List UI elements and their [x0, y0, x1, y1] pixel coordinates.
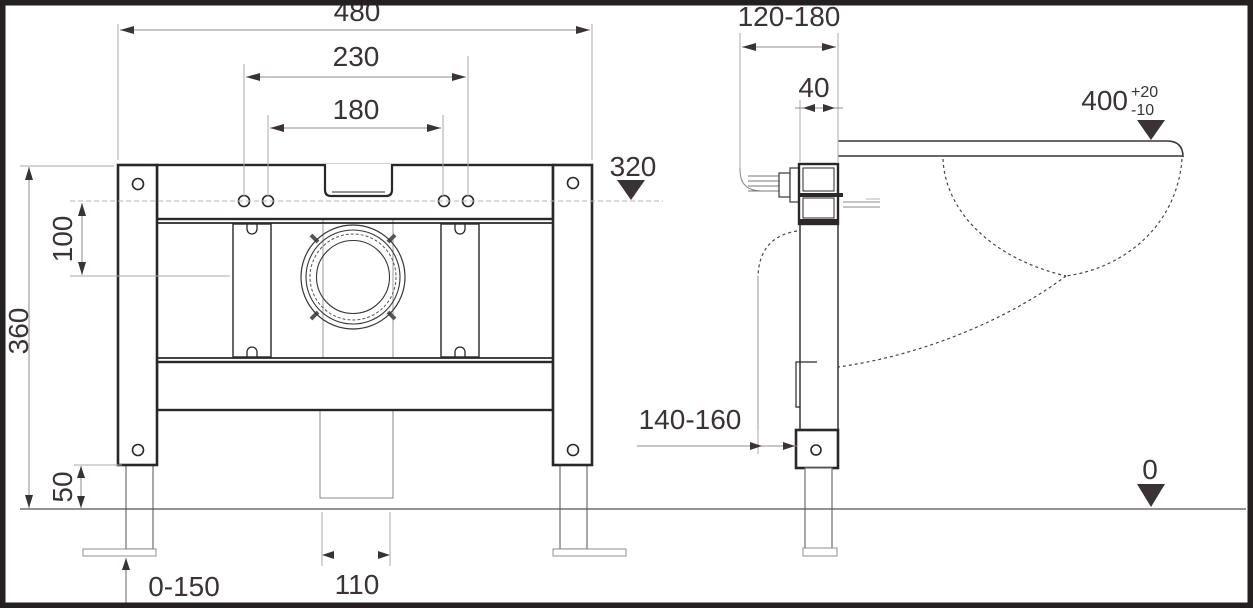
- water-supply-connection: [740, 150, 799, 202]
- left-leg: [126, 465, 153, 549]
- technical-drawing-page: 480 230 180 320 100 360 50 0-150 110 120…: [0, 0, 1253, 608]
- right-leg: [560, 465, 587, 549]
- toilet-rim-top: [838, 141, 1183, 157]
- cistern-notch: [325, 164, 392, 196]
- front-view: [83, 164, 626, 556]
- dim-inner-hole-spacing: 180: [333, 94, 380, 125]
- right-foot-plate: [553, 549, 626, 556]
- flange-inner-ring: [317, 241, 390, 314]
- bottom-rail: [157, 362, 553, 410]
- dim-rim-tolerance-minus: -10: [1131, 102, 1154, 119]
- datum-triangle-400-icon: [1137, 120, 1165, 140]
- drain-flange: [301, 225, 405, 329]
- dim-wall-offset-range: 120-180: [738, 1, 841, 32]
- right-strut: [441, 224, 479, 357]
- installation-diagram: 480 230 180 320 100 360 50 0-150 110 120…: [0, 0, 1253, 608]
- dim-frame-depth: 40: [798, 72, 829, 103]
- drain-elbow-outline: [320, 411, 393, 498]
- rail-step-notch: [796, 362, 817, 407]
- dim-foot-clearance: 50: [47, 471, 78, 502]
- bracket-hole: [811, 445, 821, 455]
- dim-drain-pipe-width: 110: [335, 569, 380, 600]
- left-post: [118, 165, 157, 465]
- valve-box: [799, 164, 880, 224]
- dim-frame-height: 360: [3, 308, 34, 355]
- post-hole: [568, 445, 579, 456]
- supply-nut: [779, 173, 790, 197]
- left-strut: [233, 224, 271, 357]
- datum-triangle-320-icon: [617, 180, 645, 200]
- dim-rim-height: 400: [1081, 85, 1128, 116]
- dim-floor-datum: 0: [1142, 454, 1158, 485]
- supply-flange: [790, 168, 799, 202]
- supply-bracket: [740, 150, 780, 191]
- datum-triangle-0-icon: [1137, 484, 1165, 507]
- post-hole: [133, 179, 144, 190]
- side-view: [740, 141, 1183, 556]
- page-border: [0, 0, 1253, 608]
- dim-foot-adjustment: 0-150: [148, 571, 220, 602]
- dim-outlet-adjustment: 140-160: [639, 404, 742, 435]
- left-foot-plate: [83, 549, 156, 556]
- right-post: [553, 165, 592, 465]
- dim-outer-hole-spacing: 230: [333, 41, 380, 72]
- flush-bend-arc: [758, 231, 797, 277]
- side-foot-plate: [803, 548, 837, 556]
- dim-hole-height-datum: 320: [610, 151, 657, 182]
- post-hole: [133, 445, 144, 456]
- dim-hole-to-drain-offset: 100: [47, 216, 78, 263]
- post-hole: [568, 178, 579, 189]
- dim-rim-tolerance-plus: +20: [1131, 84, 1158, 101]
- flange-middle-ring: [306, 230, 400, 324]
